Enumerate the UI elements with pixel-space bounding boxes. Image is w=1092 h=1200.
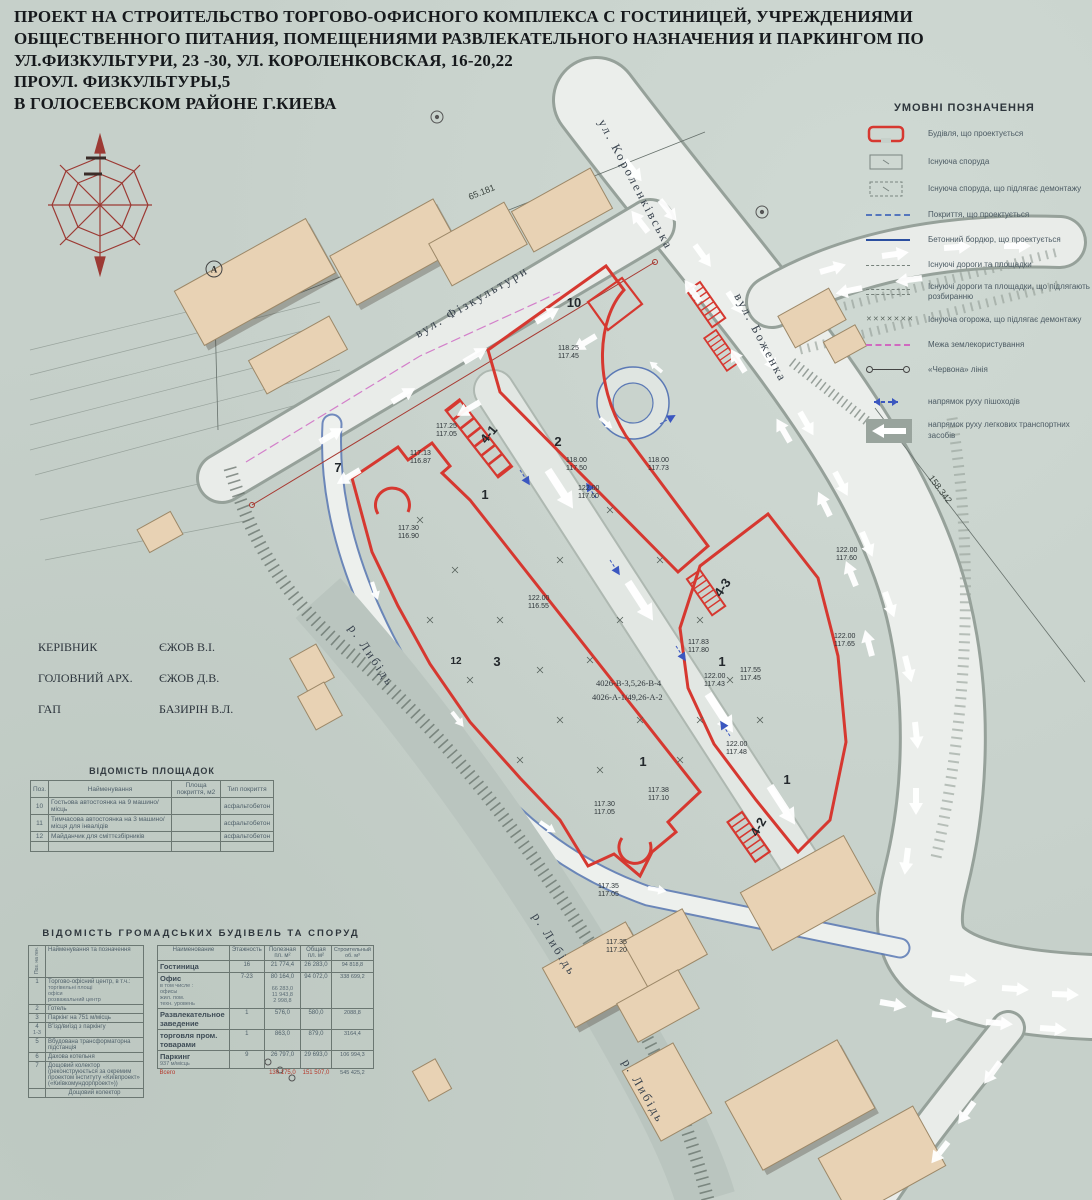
svg-text:117.60: 117.60 (578, 493, 599, 500)
personnel-row: ГОЛОВНИЙ АРХ. ЄЖОВ Д.В. (38, 671, 233, 686)
table-header-row: Наименование Этажность Полезная пл. м² О… (158, 946, 374, 961)
svg-text:2: 2 (554, 434, 561, 449)
legend-title: УМОВНІ ПОЗНАЧЕННЯ (894, 102, 1090, 114)
svg-text:117.38: 117.38 (648, 787, 669, 794)
vehicle-arrow-icon (866, 419, 914, 443)
svg-text:117.65: 117.65 (834, 641, 855, 648)
legend-item-existing-roads: Існуючі дороги та площадки (866, 257, 1090, 273)
table-row: 3 Паркінг на 751 м/місць (29, 1013, 144, 1022)
personnel-name: ЄЖОВ Д.В. (159, 671, 219, 685)
roads-to-remove-swatch (866, 289, 914, 295)
svg-text:4026-В-3,5,26-В-4: 4026-В-3,5,26-В-4 (596, 678, 662, 688)
svg-text:116.55: 116.55 (528, 603, 549, 610)
legend-item-pedestrian-direction: напрямок руху пішоходів (866, 394, 1090, 410)
svg-text:117.35: 117.35 (598, 883, 619, 890)
personnel-block: КЕРІВНИК ЄЖОВ В.І. ГОЛОВНИЙ АРХ. ЄЖОВ Д.… (38, 640, 233, 733)
svg-text:117.80: 117.80 (688, 647, 709, 654)
personnel-role: ГОЛОВНИЙ АРХ. (38, 671, 156, 686)
svg-text:117.48: 117.48 (726, 749, 747, 756)
legend-item-land-boundary: Межа землекористування (866, 337, 1090, 353)
legend-item-demolish-building: Існуюча споруда, що підлягає демонтажу (866, 180, 1090, 198)
svg-text:117.05: 117.05 (594, 809, 615, 816)
table-header-row: Поз. на ген. Найменування та позначення (29, 946, 144, 978)
svg-text:122.00: 122.00 (578, 485, 600, 492)
table-row: 5 Вбудована трансформаторна підстанція (29, 1037, 144, 1052)
legend-item-vehicle-direction: напрямок руху легкових транспортних засо… (866, 419, 1090, 443)
table-row: 4 1-3 В’їзд/виїзд з паркінгу (29, 1022, 144, 1037)
table-row: 11 Тимчасова автостоянка на 3 машино/міс… (31, 815, 274, 832)
svg-text:1: 1 (783, 772, 790, 787)
svg-text:117.30: 117.30 (398, 525, 419, 532)
personnel-role: КЕРІВНИК (38, 640, 156, 655)
svg-text:117.45: 117.45 (740, 675, 761, 682)
sites-table-header-row: Поз. Найменування Площа покриття, м2 Тип… (31, 781, 274, 798)
svg-text:10: 10 (567, 295, 581, 310)
table-row: торговля пром. товарами 1 863,0 879,0 31… (158, 1030, 374, 1051)
legend-item-existing-building: Існуюча споруда (866, 153, 1090, 171)
svg-text:12: 12 (450, 656, 462, 667)
pedestrian-arrow-icon (866, 396, 914, 408)
table-row: Дощовий колектор (29, 1088, 144, 1097)
svg-text:116.87: 116.87 (410, 458, 431, 465)
svg-text:3: 3 (493, 654, 500, 669)
proposed-building-swatch (866, 124, 914, 144)
table-row: 2 Готель (29, 1004, 144, 1013)
personnel-name: БАЗИРІН В.Л. (159, 702, 233, 716)
svg-text:122.00: 122.00 (834, 633, 856, 640)
svg-text:122.00: 122.00 (528, 595, 550, 602)
personnel-name: ЄЖОВ В.І. (159, 640, 215, 654)
legend: УМОВНІ ПОЗНАЧЕННЯ Будівля, що проектуєть… (866, 102, 1090, 452)
svg-text:117.43: 117.43 (704, 681, 725, 688)
svg-text:117.83: 117.83 (688, 639, 709, 646)
land-boundary-swatch (866, 344, 914, 346)
sites-table: ВІДОМІСТЬ ПЛОЩАДОК Поз. Найменування Пло… (30, 766, 274, 852)
svg-text:118.00: 118.00 (566, 457, 587, 464)
personnel-role: ГАП (38, 702, 156, 717)
svg-text:117.50: 117.50 (566, 465, 587, 472)
title-line-1: ПРОЕКТ НА СТРОИТЕЛЬСТВО ТОРГОВО-ОФИСНОГО… (14, 6, 914, 28)
svg-text:7: 7 (334, 460, 341, 475)
svg-text:117.30: 117.30 (594, 801, 615, 808)
table-row: Офис в том числе : офисы жил. пом. техн.… (158, 973, 374, 1009)
table-row: 1 Торгово-офісний центр, в т.ч.: торгіве… (29, 977, 144, 1004)
title-line-3: УЛ.ФИЗКУЛЬТУРИ, 23 -30, УЛ. КОРОЛЕНКОВСК… (14, 50, 914, 72)
svg-text:122.00: 122.00 (726, 741, 748, 748)
table-row: 12 Майданчик для сміттєзбірників асфальт… (31, 832, 274, 842)
table-row: Паркинг 937 м/місць 9 26 797,0 29 693,0 … (158, 1051, 374, 1069)
existing-building-swatch (866, 153, 914, 171)
title-line-4: ПРОУЛ. ФИЗКУЛЬТУРЫ,5 (14, 71, 914, 93)
sites-table-title: ВІДОМІСТЬ ПЛОЩАДОК (30, 766, 274, 776)
table-row: Развлекательное заведение 1 576,0 580,0 … (158, 1009, 374, 1030)
legend-item-proposed-building: Будівля, що проектується (866, 124, 1090, 144)
buildings-table-right: Наименование Этажность Полезная пл. м² О… (157, 945, 374, 1077)
legend-item-red-line: «Червона» лінія (866, 362, 1090, 378)
plan-annotations: 4026-В-3,5,26-В-4 4026-А-1/49,26-А-2 (592, 678, 663, 702)
svg-text:117.20: 117.20 (606, 947, 627, 954)
roundabout (597, 367, 669, 439)
buildings-table-title: ВІДОМІСТЬ ГРОМАДСЬКИХ БУДІВЕЛЬ ТА СПОРУД (28, 928, 374, 939)
legend-item-roads-to-remove: Існуючі дороги та площадки, що підлягают… (866, 282, 1090, 303)
table-row: 10 Гостьова автостоянка на 9 машино/місц… (31, 798, 274, 815)
table-row-empty (31, 842, 274, 852)
legend-item-curb: Бетонний бордюр, що проектується (866, 232, 1090, 248)
svg-text:122.00: 122.00 (704, 673, 726, 680)
demolish-building-swatch (866, 180, 914, 198)
site-plan-sheet: А ул. Короленківська вул. Фізкультури ву… (0, 0, 1092, 1200)
svg-text:1: 1 (481, 487, 488, 502)
svg-text:117.13: 117.13 (410, 450, 431, 457)
buildings-table: ВІДОМІСТЬ ГРОМАДСЬКИХ БУДІВЕЛЬ ТА СПОРУД… (28, 928, 374, 1098)
project-title: ПРОЕКТ НА СТРОИТЕЛЬСТВО ТОРГОВО-ОФИСНОГО… (14, 6, 914, 115)
red-line-swatch (866, 366, 914, 373)
axis-marker-letter: А (211, 265, 218, 275)
svg-text:118.00: 118.00 (648, 457, 669, 464)
svg-text:117.45: 117.45 (558, 353, 579, 360)
svg-text:1: 1 (639, 754, 646, 769)
personnel-row: ГАП БАЗИРІН В.Л. (38, 702, 233, 717)
svg-text:117.35: 117.35 (606, 939, 627, 946)
svg-text:122.00: 122.00 (836, 547, 858, 554)
svg-text:118.25: 118.25 (558, 345, 579, 352)
table-row: 7 Дощовий колектор (реконструюється за о… (29, 1061, 144, 1088)
compass-rose (48, 135, 152, 275)
svg-text:117.73: 117.73 (648, 465, 669, 472)
existing-roads-swatch (866, 265, 914, 266)
legend-item-paving: Покриття, що проектується (866, 207, 1090, 223)
svg-text:117.05: 117.05 (598, 891, 619, 898)
table-total-row: Всего 130 175,0 151 507,0 545 425,2 (158, 1069, 374, 1078)
buildings-table-left: Поз. на ген. Найменування та позначення … (28, 945, 144, 1098)
svg-text:117.25: 117.25 (436, 423, 457, 430)
table-row: 6 Дахова котельня (29, 1052, 144, 1061)
svg-text:116.90: 116.90 (398, 533, 419, 540)
svg-text:4026-А-1/49,26-А-2: 4026-А-1/49,26-А-2 (592, 692, 663, 702)
legend-item-fence-demolish: ✕✕✕✕✕✕✕ Існуюча огорожа, що підлягає дем… (866, 312, 1090, 328)
svg-text:117.60: 117.60 (836, 555, 857, 562)
fence-swatch: ✕✕✕✕✕✕✕ (866, 316, 914, 323)
dimension-65: 65.181 (467, 182, 496, 202)
svg-text:117.05: 117.05 (436, 431, 457, 438)
title-line-5: В ГОЛОСЕЕВСКОМ РАЙОНЕ Г.КИЕВА (14, 93, 914, 115)
table-row: Гостиница 16 21 774,4 26 283,0 94 818,8 (158, 961, 374, 973)
personnel-row: КЕРІВНИК ЄЖОВ В.І. (38, 640, 233, 655)
curb-swatch (866, 239, 914, 241)
svg-text:117.10: 117.10 (648, 795, 669, 802)
svg-text:117.55: 117.55 (740, 667, 761, 674)
title-line-2: ОБЩЕСТВЕННОГО ПИТАНИЯ, ПОМЕЩЕНИЯМИ РАЗВЛ… (14, 28, 914, 50)
paving-swatch (866, 214, 914, 216)
svg-text:1: 1 (718, 654, 725, 669)
